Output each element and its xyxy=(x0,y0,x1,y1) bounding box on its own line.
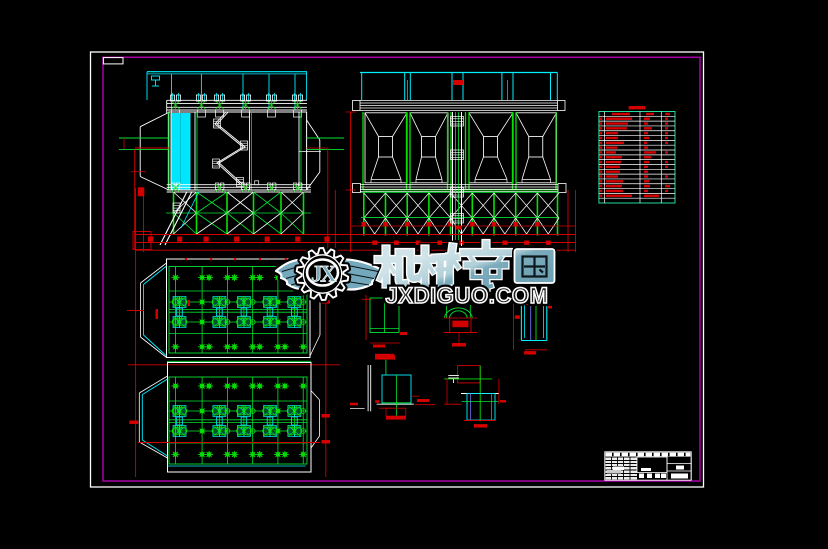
svg-text:JXDIGUO.COM: JXDIGUO.COM xyxy=(385,283,548,308)
svg-text:JX: JX xyxy=(311,262,337,287)
